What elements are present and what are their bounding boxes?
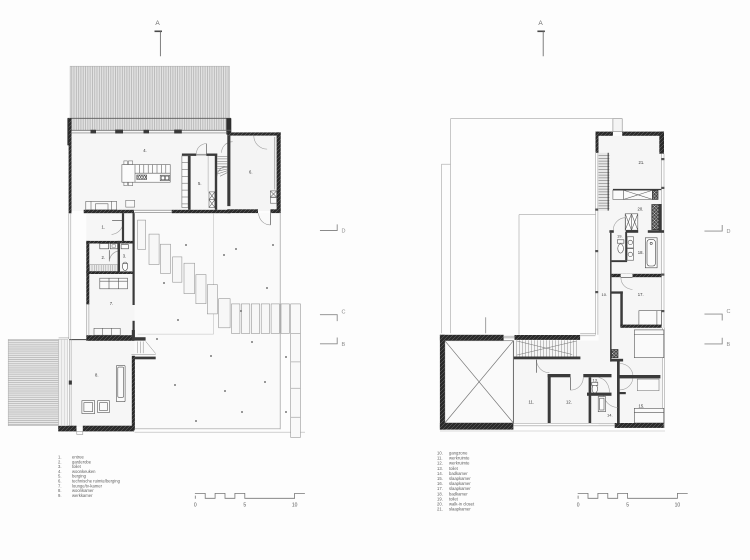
svg-text:6.: 6. xyxy=(249,170,253,175)
svg-text:10: 10 xyxy=(675,503,681,509)
svg-text:9.: 9. xyxy=(58,493,62,498)
svg-text:D: D xyxy=(727,229,731,235)
svg-text:8.: 8. xyxy=(95,373,99,378)
svg-text:7.: 7. xyxy=(110,301,114,306)
svg-text:13.: 13. xyxy=(593,378,599,383)
svg-text:21.: 21. xyxy=(639,160,645,165)
svg-text:14.: 14. xyxy=(607,413,613,418)
svg-text:3.: 3. xyxy=(123,254,127,259)
svg-text:18.: 18. xyxy=(638,250,644,255)
svg-text:2.: 2. xyxy=(102,255,106,260)
svg-text:21.: 21. xyxy=(437,507,443,512)
svg-text:20.: 20. xyxy=(638,207,644,212)
svg-text:4.: 4. xyxy=(143,148,147,153)
svg-text:0: 0 xyxy=(577,503,580,509)
svg-text:B: B xyxy=(342,342,346,348)
svg-text:A: A xyxy=(155,20,160,27)
svg-text:5: 5 xyxy=(243,503,246,509)
svg-text:slaapkamer: slaapkamer xyxy=(449,507,471,512)
svg-text:17.: 17. xyxy=(638,292,644,297)
svg-text:19.: 19. xyxy=(617,234,623,239)
svg-text:5.: 5. xyxy=(198,181,202,186)
svg-text:A: A xyxy=(538,20,543,27)
svg-text:0: 0 xyxy=(194,503,197,509)
svg-text:5: 5 xyxy=(626,503,629,509)
svg-text:10: 10 xyxy=(292,503,298,509)
svg-text:C: C xyxy=(342,310,346,316)
svg-text:11.: 11. xyxy=(529,400,535,405)
svg-text:werkkamer: werkkamer xyxy=(72,493,93,498)
svg-text:D: D xyxy=(342,229,346,235)
svg-text:10.: 10. xyxy=(602,292,608,297)
svg-text:C: C xyxy=(727,309,731,315)
svg-text:B: B xyxy=(727,342,731,348)
svg-text:12.: 12. xyxy=(566,400,572,405)
svg-text:1.: 1. xyxy=(102,225,106,230)
svg-text:15.: 15. xyxy=(639,404,645,409)
